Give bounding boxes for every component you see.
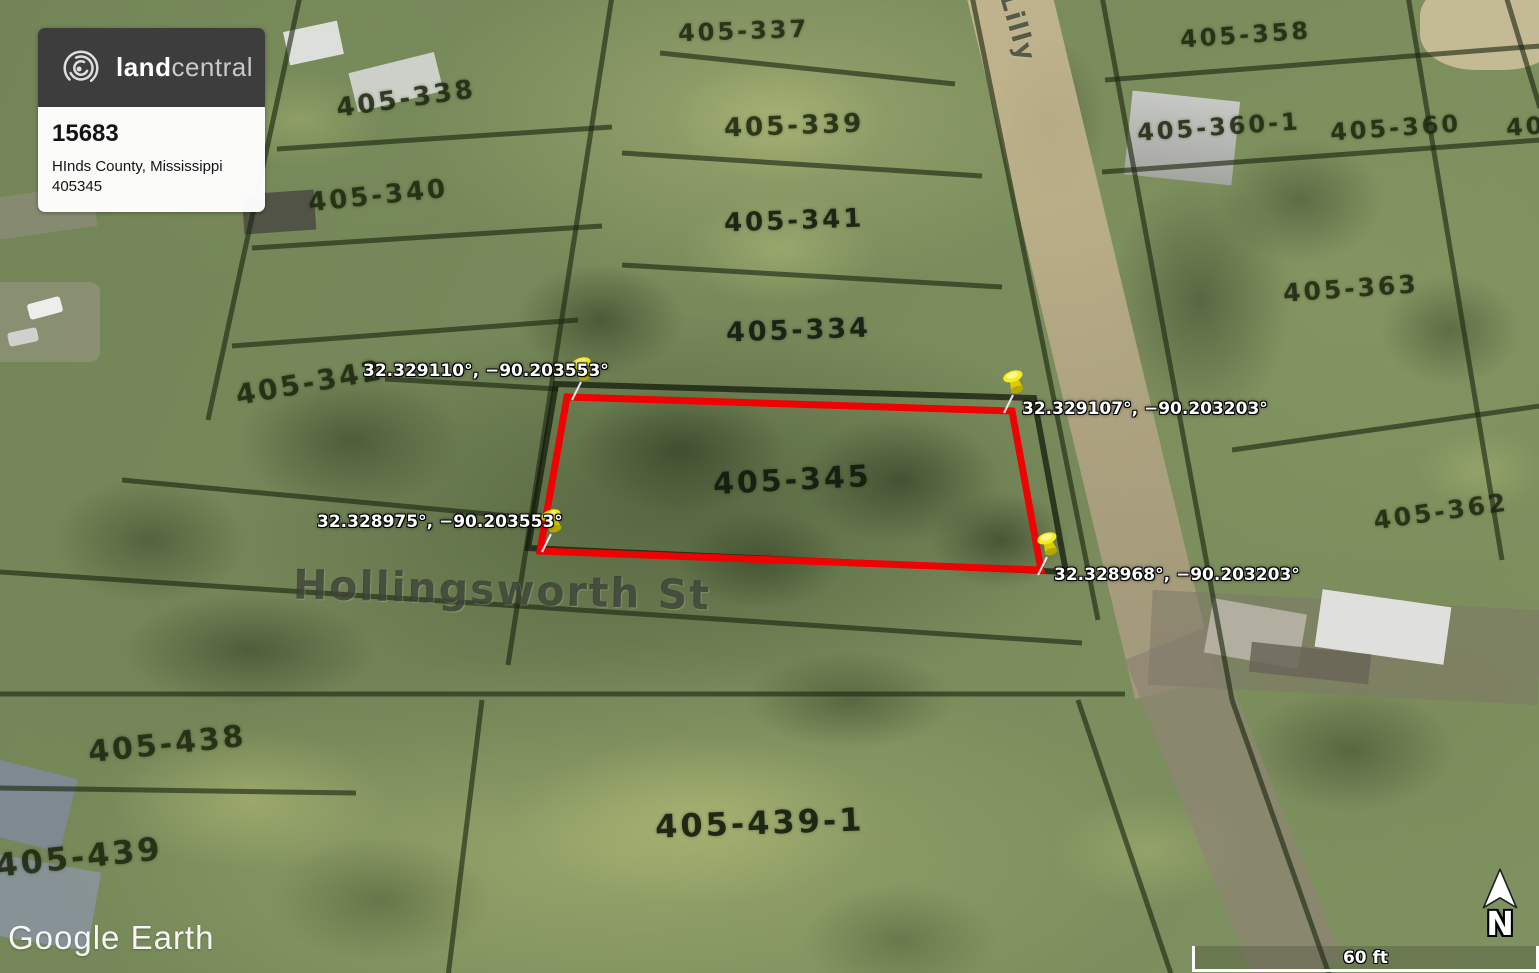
- gravel-left-edge: [0, 282, 100, 362]
- coord-label-bottom-left: 32.328975°, −90.203553°: [317, 512, 563, 532]
- landcentral-wordmark: landcentral: [116, 52, 253, 83]
- listing-location: HInds County, Mississippi: [52, 157, 251, 177]
- google-earth-watermark: Google Earth: [8, 919, 214, 957]
- coord-label-top-right: 32.329107°, −90.203203°: [1022, 399, 1268, 419]
- landcentral-logo-icon: [58, 45, 104, 91]
- scale-bar-label: 60 ft: [1343, 948, 1388, 968]
- listing-apn: 405345: [52, 177, 251, 197]
- parcel-label-405-439-1: 405-439-1: [654, 800, 865, 845]
- listing-card-body: 15683 HInds County, Mississippi 405345: [38, 107, 265, 212]
- scale-bar: 60 ft: [1192, 946, 1539, 972]
- parcel-label-405-339: 405-339: [724, 109, 865, 144]
- compass-n-label: N: [1478, 904, 1522, 943]
- listing-card: landcentral 15683 HInds County, Mississi…: [38, 28, 265, 212]
- listing-id: 15683: [52, 120, 251, 148]
- parcel-label-405-341: 405-341: [724, 204, 865, 239]
- sand-patch-top-right: [1420, 0, 1539, 70]
- parcel-label-405-337: 405-337: [678, 15, 810, 48]
- parcel-label-partial-right-edge: 405: [1505, 110, 1539, 142]
- coord-label-top-left: 32.329110°, −90.203553°: [363, 361, 609, 381]
- north-compass: N: [1478, 868, 1522, 943]
- listing-card-header: landcentral: [38, 28, 265, 107]
- coord-label-bottom-right: 32.328968°, −90.203203°: [1054, 565, 1300, 585]
- google-earth-viewport[interactable]: 405-337 405-338 405-339 405-340 405-341 …: [0, 0, 1539, 973]
- parcel-label-405-334: 405-334: [726, 312, 872, 348]
